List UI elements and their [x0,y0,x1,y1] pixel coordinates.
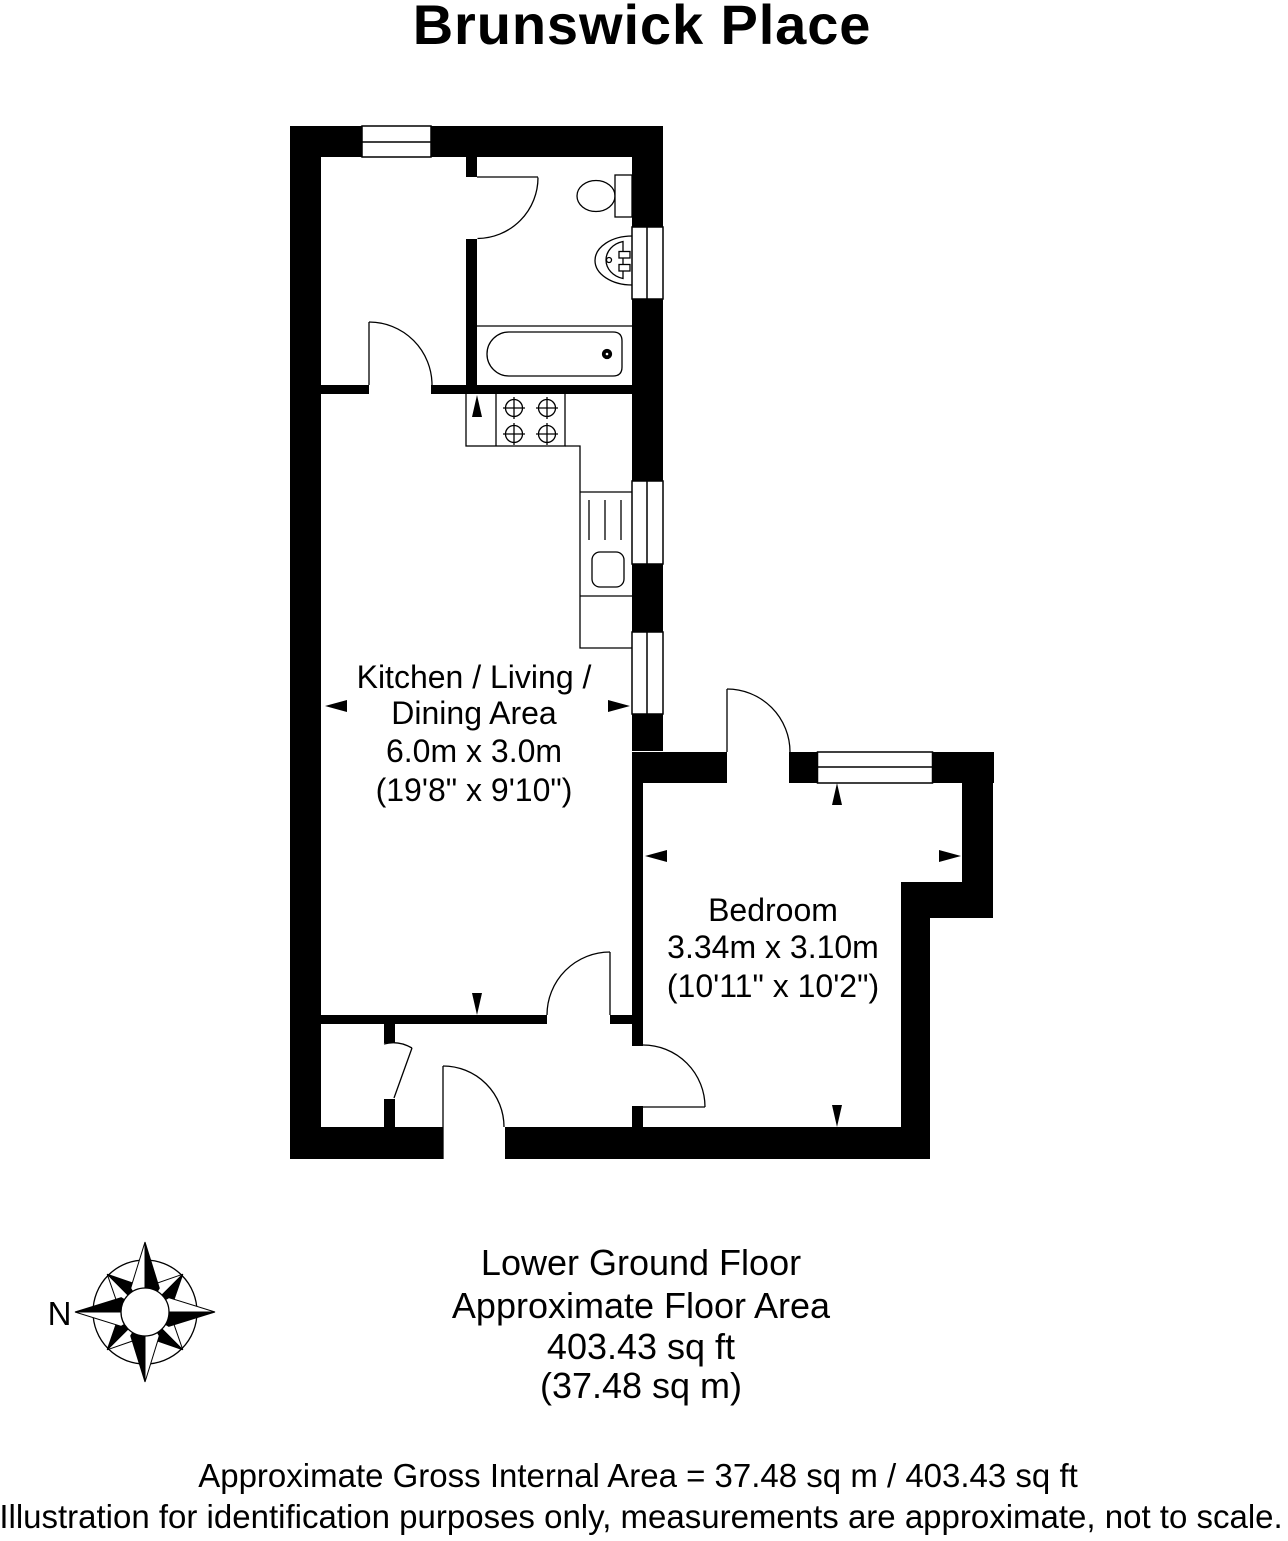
svg-text:Brunswick Place: Brunswick Place [413,0,872,56]
svg-text:Approximate Gross Internal Are: Approximate Gross Internal Area = 37.48 … [198,1457,1078,1494]
svg-text:403.43 sq ft: 403.43 sq ft [547,1326,735,1367]
svg-text:Kitchen / Living /: Kitchen / Living / [357,659,592,695]
svg-text:N: N [48,1295,72,1332]
svg-text:(37.48 sq m): (37.48 sq m) [540,1365,742,1406]
svg-text:6.0m x 3.0m: 6.0m x 3.0m [386,733,562,769]
svg-text:Approximate Floor Area: Approximate Floor Area [452,1285,831,1326]
svg-text:Illustration for identificatio: Illustration for identification purposes… [0,1498,1283,1535]
svg-text:Dining Area: Dining Area [391,695,557,731]
svg-text:3.34m x 3.10m: 3.34m x 3.10m [667,929,879,965]
svg-text:(10'11" x 10'2"): (10'11" x 10'2") [667,968,879,1004]
svg-text:Bedroom: Bedroom [708,892,838,928]
svg-text:Lower Ground Floor: Lower Ground Floor [481,1242,801,1283]
svg-text:(19'8" x 9'10"): (19'8" x 9'10") [376,772,573,808]
